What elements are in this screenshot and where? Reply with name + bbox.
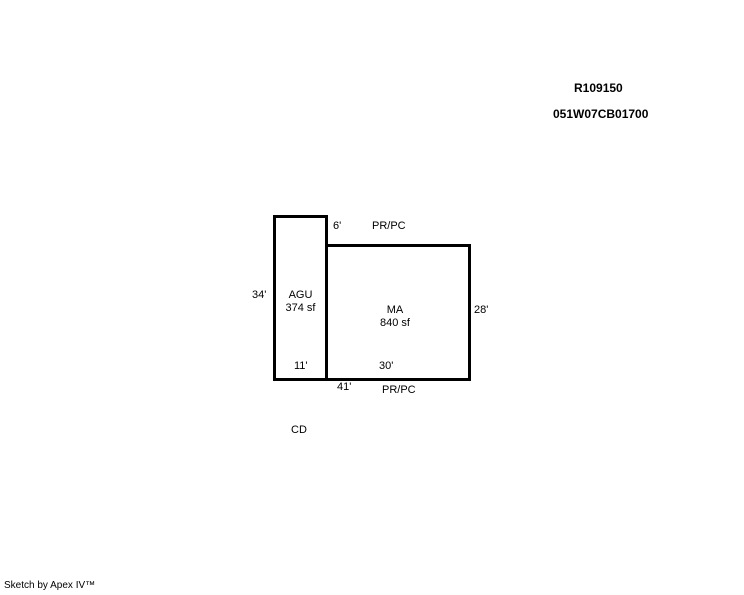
boundary-label-bottom: PR/PC — [382, 384, 416, 397]
parcel-id: 051W07CB01700 — [553, 107, 648, 121]
dim-total-bottom: 41' — [337, 381, 351, 394]
record-id: R109150 — [574, 81, 623, 95]
apex-sketch-page: { "canvas": { "background": "#ffffff", "… — [0, 0, 744, 595]
dim-top-offset: 6' — [333, 220, 341, 233]
cd-label: CD — [291, 424, 307, 437]
agu-label: AGU 374 sf — [273, 289, 328, 315]
agu-area: 374 sf — [273, 302, 328, 315]
ma-label: MA 840 sf — [322, 304, 468, 330]
dim-agu-bottom: 11' — [294, 360, 308, 373]
agu-name: AGU — [273, 289, 328, 302]
dim-ma-bottom: 30' — [379, 360, 393, 373]
dim-ma-right: 28' — [474, 304, 488, 317]
ma-area: 840 sf — [322, 317, 468, 330]
apex-credit: Sketch by Apex IV™ — [4, 580, 95, 591]
dim-agu-left: 34' — [252, 289, 266, 302]
ma-name: MA — [322, 304, 468, 317]
boundary-label-top: PR/PC — [372, 220, 406, 233]
